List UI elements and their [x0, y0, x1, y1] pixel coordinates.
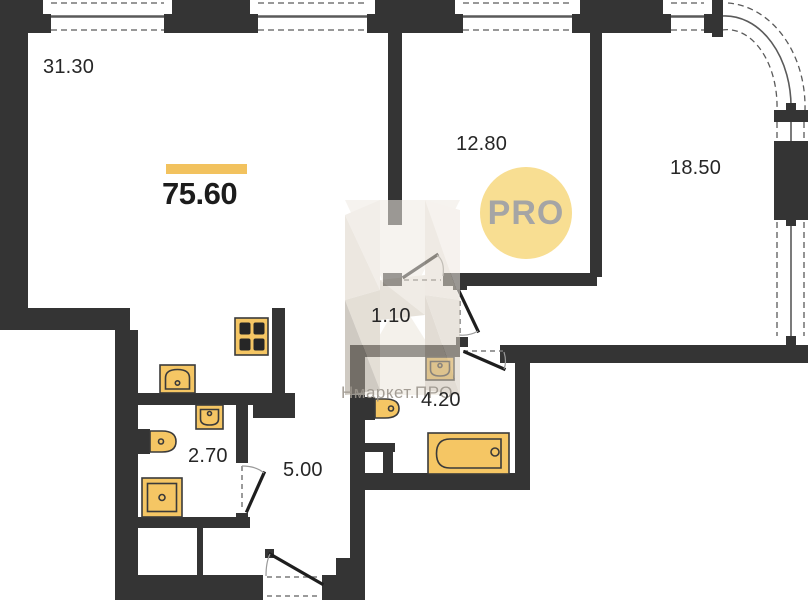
floor-plan: 31.30 12.80 18.50 1.10 4.20 2.70 5.00 75… [0, 0, 810, 600]
total-area-label: 75.60 [162, 176, 237, 212]
room-area-bedroom1: 12.80 [456, 133, 507, 156]
wc-sink-icon [196, 405, 223, 429]
brand-watermark-shape [345, 200, 460, 395]
kitchen-sink-icon [160, 365, 195, 393]
shower-tray-icon [142, 478, 182, 517]
room-area-bedroom2: 18.50 [670, 157, 721, 180]
wc-toilet-icon [138, 429, 176, 454]
bathtub-icon [428, 433, 509, 474]
pro-logo-text: PRO [488, 194, 565, 233]
stove-icon [235, 318, 268, 355]
room-area-hallway: 5.00 [283, 459, 323, 482]
floor-plan-drawing [0, 0, 810, 600]
room-area-wc: 2.70 [188, 445, 228, 468]
room-area-bathroom: 4.20 [421, 389, 461, 412]
total-area-accent-bar [166, 164, 247, 174]
room-area-corridor: 1.10 [371, 305, 411, 328]
curved-corner-window [722, 3, 805, 110]
room-area-living: 31.30 [43, 56, 94, 79]
pro-logo-badge: PRO [480, 167, 572, 259]
